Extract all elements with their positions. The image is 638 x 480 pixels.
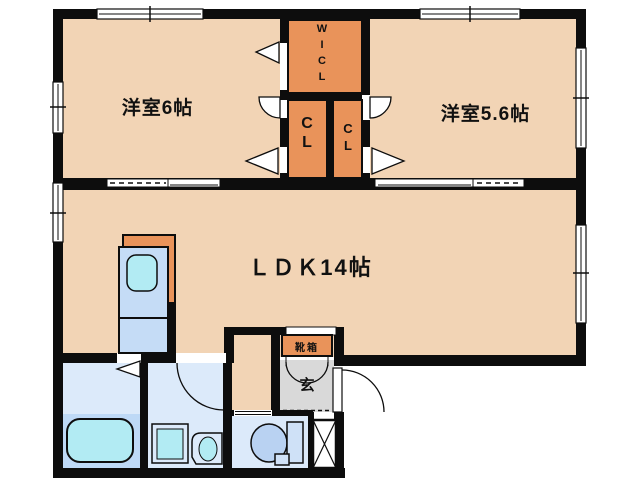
opening-wicl bbox=[280, 43, 288, 90]
wall-ldk-bottom-right bbox=[338, 355, 586, 366]
floor-plan: 洋室6帖 洋室5.6帖 ＬＤＫ14帖 W I C L C L C L 靴箱 玄 bbox=[0, 0, 638, 480]
bedroom56-label: 洋室5.6帖 bbox=[418, 99, 553, 126]
opening-washroom bbox=[176, 353, 226, 363]
pipe-space bbox=[313, 420, 336, 468]
opening-toilet bbox=[234, 410, 272, 416]
window-ldk-left bbox=[50, 183, 66, 242]
hall-floor bbox=[230, 330, 275, 412]
window-ldk-right bbox=[573, 225, 589, 323]
bathtub bbox=[67, 419, 133, 462]
washing-machine-drum bbox=[157, 429, 183, 459]
window-bedroom6-bottom bbox=[107, 179, 220, 187]
opening-cl-left-upper bbox=[280, 100, 288, 118]
cl-right-label: C L bbox=[338, 120, 358, 154]
kitchen-unit bbox=[119, 235, 176, 355]
wicl-label: W I C L bbox=[312, 21, 332, 85]
sanitary-fixtures bbox=[67, 419, 303, 465]
window-bedroom6-left bbox=[50, 82, 66, 133]
window-bedroom56-right bbox=[573, 48, 589, 148]
wall-hall-entrance-divider bbox=[271, 335, 280, 412]
cl-left-label: C L bbox=[295, 114, 319, 152]
opening-cl-left-lower bbox=[280, 147, 288, 173]
opening-above-shoebox bbox=[286, 327, 336, 335]
entrance-label: 玄 bbox=[297, 374, 317, 395]
wall-wicl-cl-divider bbox=[288, 93, 362, 100]
window-bedroom56-bottom bbox=[375, 179, 524, 187]
wall-bath-wash-divider bbox=[140, 357, 148, 468]
shoebox-label: 靴箱 bbox=[283, 339, 331, 354]
wall-entrance-right-upper bbox=[334, 335, 344, 366]
toilet-base bbox=[275, 454, 289, 465]
entrance-door-swing-icon bbox=[342, 370, 384, 412]
wall-bottom bbox=[53, 468, 345, 478]
entrance-door-leaf bbox=[333, 368, 342, 412]
kitchen-sink bbox=[127, 255, 157, 291]
opening-cl-right-upper bbox=[362, 95, 370, 120]
ldk-label: ＬＤＫ14帖 bbox=[238, 250, 383, 282]
opening-cl-right-lower bbox=[362, 147, 370, 173]
bedroom6-label: 洋室6帖 bbox=[95, 93, 220, 120]
washbasin-bowl bbox=[199, 437, 217, 461]
wall-left bbox=[53, 9, 63, 478]
